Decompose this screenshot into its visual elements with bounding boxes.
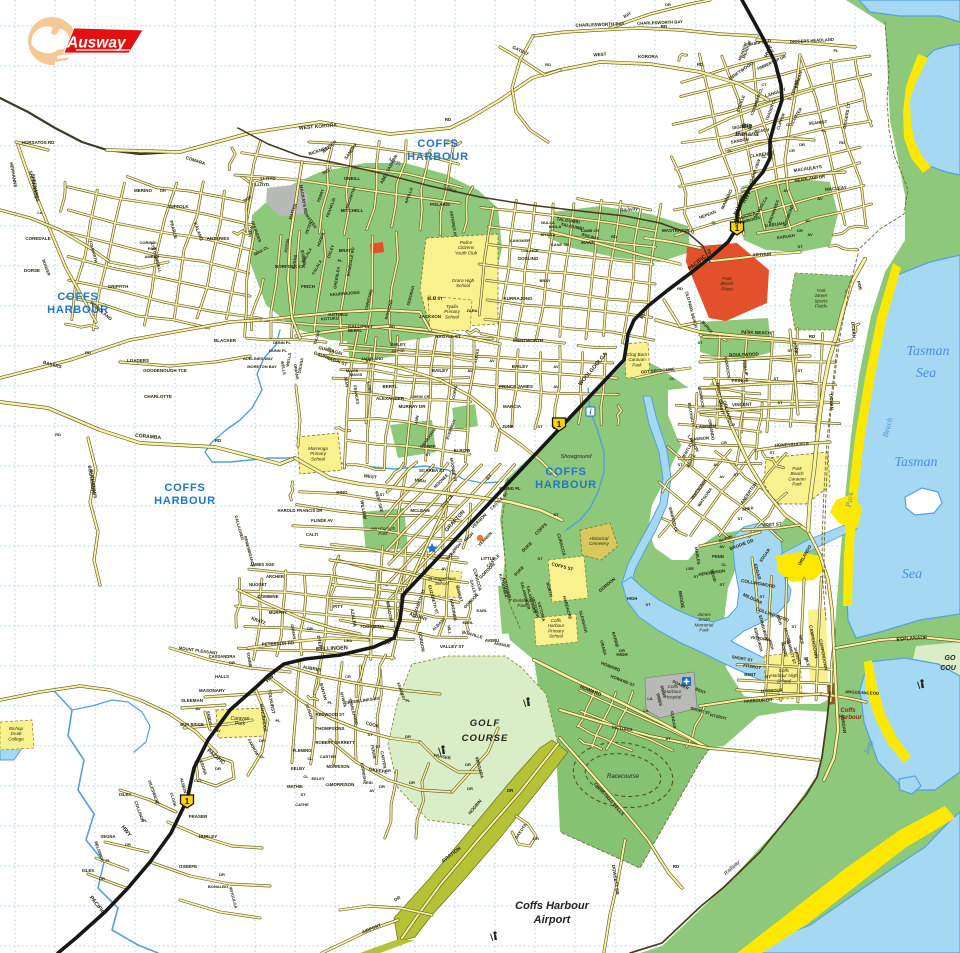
svg-text:ST: ST (733, 472, 739, 477)
svg-text:PL: PL (337, 258, 343, 263)
svg-text:CALTI: CALTI (306, 532, 318, 537)
svg-text:VOST ST: VOST ST (762, 521, 782, 527)
svg-text:ST: ST (783, 640, 789, 645)
svg-text:RD: RD (389, 324, 395, 329)
svg-text:Youth Club: Youth Club (455, 250, 478, 255)
svg-text:BRAY: BRAY (540, 278, 551, 283)
svg-text:DR: DR (507, 788, 514, 793)
svg-text:ST: ST (797, 244, 803, 249)
svg-text:DR: DR (465, 762, 471, 767)
svg-text:ST: ST (797, 368, 803, 373)
svg-text:School: School (445, 314, 460, 319)
svg-text:OXEEFE: OXEEFE (179, 864, 197, 869)
svg-text:WEST: WEST (593, 52, 606, 58)
svg-text:RD: RD (545, 62, 551, 67)
svg-text:Coffs Harbour: Coffs Harbour (515, 900, 589, 912)
svg-text:BAILEY: BAILEY (390, 342, 406, 347)
svg-text:MATHIE: MATHIE (287, 784, 303, 789)
svg-text:DR: DR (799, 142, 805, 147)
svg-text:PL: PL (275, 718, 281, 723)
svg-text:AV: AV (489, 358, 495, 363)
svg-text:GO: GO (945, 655, 956, 662)
svg-text:PRINCE: PRINCE (731, 378, 748, 384)
svg-text:PL: PL (821, 128, 827, 133)
svg-text:LA: LA (647, 696, 652, 701)
svg-text:Ausway: Ausway (66, 35, 127, 52)
svg-text:RD: RD (55, 432, 61, 437)
svg-text:AV: AV (783, 188, 789, 193)
svg-text:ARTHUR: ARTHUR (752, 251, 772, 257)
svg-text:DR: DR (619, 648, 625, 653)
svg-text:TOORMINA: TOORMINA (360, 624, 385, 629)
svg-text:CATHE: CATHE (295, 802, 309, 807)
svg-text:AV: AV (713, 462, 719, 467)
svg-text:PITT: PITT (333, 604, 343, 609)
svg-text:Tasman: Tasman (894, 455, 937, 470)
svg-text:Park: Park (235, 721, 246, 727)
svg-text:ST: ST (553, 512, 559, 517)
svg-text:Airport: Airport (533, 914, 572, 926)
svg-text:Tasman: Tasman (906, 344, 949, 359)
svg-text:EARL: EARL (477, 608, 488, 613)
svg-text:COLLICE: COLLICE (521, 248, 539, 253)
svg-text:Sea: Sea (916, 366, 936, 381)
svg-text:COFFS: COFFS (545, 466, 586, 478)
svg-text:MANN: MANN (581, 240, 595, 245)
svg-text:RD: RD (809, 334, 816, 339)
svg-text:COFFS: COFFS (417, 138, 458, 150)
svg-text:RD: RD (85, 350, 91, 355)
svg-text:CL: CL (307, 756, 313, 761)
svg-text:School: School (777, 678, 792, 683)
svg-text:BUR RIDGE: BUR RIDGE (180, 722, 204, 727)
svg-text:PENN: PENN (712, 554, 724, 559)
svg-text:DR: DR (533, 836, 539, 841)
svg-text:LA: LA (37, 210, 42, 215)
svg-text:HALLS: HALLS (215, 674, 229, 679)
svg-text:ST: ST (719, 582, 725, 587)
svg-text:SLEEMAN: SLEEMAN (181, 698, 203, 703)
svg-text:ISLES: ISLES (82, 868, 94, 873)
svg-text:COMBINE: COMBINE (257, 594, 278, 599)
svg-text:CL: CL (761, 154, 767, 159)
svg-text:DR: DR (409, 780, 415, 785)
svg-text:ST: ST (697, 340, 703, 345)
svg-text:CARTER: CARTER (320, 754, 337, 759)
svg-text:JACKSON: JACKSON (419, 314, 441, 319)
svg-text:PL: PL (392, 636, 398, 641)
svg-text:ZARA: ZARA (466, 308, 477, 313)
svg-text:DR: DR (379, 784, 385, 789)
svg-text:MAVIS: MAVIS (350, 372, 363, 377)
svg-text:ADELINES WAY: ADELINES WAY (243, 356, 273, 361)
svg-text:DR: DR (125, 842, 131, 847)
svg-text:LVIEW CR: LVIEW CR (410, 394, 429, 399)
svg-text:ST: ST (300, 792, 306, 797)
svg-text:School: School (311, 456, 326, 461)
svg-text:KANE CR: KANE CR (551, 242, 569, 247)
svg-text:DR: DR (215, 766, 221, 771)
svg-text:ST: ST (537, 424, 543, 429)
svg-text:Fields: Fields (815, 304, 828, 309)
svg-text:PL: PL (833, 48, 839, 53)
svg-text:AV: AV (553, 364, 559, 369)
svg-text:GOSLING: GOSLING (518, 256, 539, 261)
svg-text:CL: CL (787, 96, 793, 101)
svg-text:DR: DR (259, 738, 265, 743)
svg-text:ELBOW: ELBOW (454, 448, 472, 453)
svg-text:PL: PL (142, 818, 148, 823)
svg-text:HURLEY: HURLEY (199, 834, 218, 839)
svg-text:LANGKER: LANGKER (510, 238, 530, 243)
svg-text:DR: DR (99, 876, 105, 881)
svg-text:JUNE: JUNE (502, 424, 514, 429)
svg-text:AV: AV (215, 728, 221, 733)
svg-text:NUGGET: NUGGET (249, 582, 267, 587)
svg-text:CHARLOTTE: CHARLOTTE (144, 394, 172, 399)
svg-text:EELBY: EELBY (291, 766, 305, 771)
svg-text:CR: CR (345, 674, 351, 679)
svg-text:DR: DR (797, 228, 803, 233)
svg-text:MORRISON: MORRISON (330, 782, 355, 787)
svg-text:ST: ST (787, 348, 793, 353)
svg-text:POLARIS: POLARIS (430, 202, 450, 207)
svg-text:VINCENT: VINCENT (732, 402, 752, 408)
svg-text:Cemetery: Cemetery (589, 541, 610, 546)
svg-text:LEE: LEE (686, 566, 694, 571)
svg-text:FLINDE AV: FLINDE AV (311, 518, 333, 523)
svg-text:KING: KING (336, 490, 348, 495)
svg-text:Showground: Showground (561, 454, 593, 460)
svg-text:RIDING PL: RIDING PL (499, 486, 521, 491)
svg-text:COFFS: COFFS (164, 482, 205, 494)
svg-text:ST: ST (693, 574, 699, 579)
svg-text:ST: ST (537, 556, 543, 561)
svg-text:CL: CL (727, 148, 733, 153)
svg-text:Park: Park (792, 482, 802, 487)
svg-text:Sea: Sea (902, 567, 922, 582)
svg-text:REDWOOD ST: REDWOOD ST (316, 712, 345, 717)
svg-text:ST: ST (645, 602, 651, 607)
svg-text:ST: ST (777, 400, 783, 405)
svg-text:PL: PL (327, 700, 333, 705)
svg-text:LOADERS: LOADERS (127, 358, 149, 363)
svg-text:ST: ST (677, 462, 683, 467)
svg-text:MYUNA: MYUNA (541, 232, 556, 237)
svg-text:ST: ST (365, 358, 371, 363)
svg-text:BOULTWOOD: BOULTWOOD (729, 351, 760, 357)
svg-text:EARL: EARL (463, 620, 474, 625)
svg-text:ST: ST (759, 594, 765, 599)
svg-text:HARBOUR: HARBOUR (154, 495, 216, 507)
svg-text:NULLA: NULLA (541, 220, 555, 225)
svg-text:Plaza: Plaza (721, 286, 733, 291)
svg-text:CL: CL (303, 774, 309, 779)
svg-text:BERYL: BERYL (348, 328, 362, 333)
svg-text:CCT: CCT (786, 122, 795, 127)
svg-text:KORORA: KORORA (638, 54, 659, 59)
svg-text:MASTRACOLA: MASTRACOLA (662, 228, 695, 233)
svg-text:CL: CL (721, 562, 727, 567)
svg-text:RD: RD (445, 117, 452, 122)
svg-text:GRIFFITH: GRIFFITH (108, 284, 129, 289)
svg-text:AMBER: AMBER (145, 254, 160, 259)
svg-text:DR: DR (467, 786, 473, 791)
svg-text:PL: PL (155, 800, 161, 805)
svg-text:ROBERT GARRETT: ROBERT GARRETT (315, 740, 355, 745)
svg-text:BAILEY: BAILEY (512, 364, 529, 369)
svg-text:PL: PL (405, 698, 411, 703)
svg-text:School: School (549, 634, 564, 639)
svg-text:AV: AV (467, 368, 473, 373)
svg-text:CL: CL (259, 754, 265, 759)
svg-text:BERYL: BERYL (382, 384, 397, 389)
svg-text:ST: ST (791, 624, 797, 629)
svg-text:RD: RD (839, 140, 845, 145)
svg-text:WENTWORTH: WENTWORTH (513, 338, 543, 343)
svg-text:DUNN PL: DUNN PL (269, 348, 287, 353)
svg-text:AV: AV (805, 218, 811, 223)
svg-text:THOMPSONS: THOMPSONS (315, 726, 344, 731)
svg-text:AV: AV (719, 474, 725, 479)
svg-text:CR: CR (721, 440, 727, 445)
svg-text:ONEILL: ONEILL (344, 176, 361, 181)
svg-text:ST: ST (425, 452, 431, 457)
svg-text:ST: ST (737, 516, 743, 521)
svg-text:DR: DR (229, 660, 235, 665)
svg-text:HARBOUR: HARBOUR (535, 479, 597, 491)
svg-text:ST: ST (769, 450, 775, 455)
svg-text:ANTARIES: ANTARIES (207, 236, 230, 241)
svg-text:ST: ST (665, 736, 671, 741)
svg-text:CASSANDRA: CASSANDRA (209, 654, 236, 659)
svg-text:JACKLAND: JACKLAND (361, 356, 383, 361)
svg-text:BLACKER: BLACKER (214, 338, 237, 343)
svg-text:DORSE: DORSE (24, 268, 40, 273)
svg-text:ARGYLL ST: ARGYLL ST (435, 334, 461, 339)
svg-text:Racecourse: Racecourse (607, 774, 640, 780)
svg-text:MASONARY: MASONARY (199, 688, 225, 693)
svg-text:1: 1 (185, 797, 190, 806)
svg-text:Park: Park (378, 531, 388, 536)
svg-text:MURRAY DR: MURRAY DR (398, 404, 426, 409)
svg-text:School: School (435, 581, 450, 586)
svg-text:LLOYD: LLOYD (255, 182, 269, 187)
svg-text:ISLES: ISLES (119, 792, 131, 797)
svg-text:AV: AV (719, 544, 725, 549)
svg-text:JOYCE: JOYCE (391, 348, 405, 353)
svg-text:ST: ST (765, 674, 771, 679)
svg-text:AV: AV (553, 384, 559, 389)
svg-text:RD: RD (673, 864, 680, 869)
svg-text:MORRISON: MORRISON (326, 764, 349, 769)
svg-text:BENT: BENT (744, 672, 756, 677)
svg-text:RD: RD (677, 286, 683, 291)
svg-text:HIGH: HIGH (627, 596, 637, 601)
svg-text:CL: CL (669, 376, 675, 381)
svg-text:ALEXANDER: ALEXANDER (376, 396, 405, 401)
svg-text:CL: CL (325, 782, 331, 787)
svg-text:RD: RD (215, 438, 222, 443)
svg-text:CL: CL (711, 220, 717, 225)
svg-text:DUNN PL: DUNN PL (273, 340, 291, 345)
svg-text:COREDALE: COREDALE (25, 236, 50, 241)
svg-text:PRINCE JAMES: PRINCE JAMES (499, 384, 533, 389)
svg-text:ST: ST (773, 376, 779, 381)
svg-text:KOTUKU: KOTUKU (321, 316, 339, 322)
svg-text:AV: AV (195, 706, 201, 711)
svg-text:FLEMING: FLEMING (293, 748, 312, 753)
svg-text:MURPHY: MURPHY (269, 610, 287, 615)
svg-text:PL: PL (105, 858, 111, 863)
svg-text:COU: COU (940, 665, 957, 672)
svg-text:SUFFOLK: SUFFOLK (167, 204, 189, 209)
svg-text:EELEY: EELEY (311, 776, 324, 781)
svg-text:MORETON BAY: MORETON BAY (247, 364, 277, 369)
svg-text:LA: LA (643, 708, 648, 713)
svg-text:SCARBA ST: SCARBA ST (419, 468, 445, 473)
svg-text:College: College (8, 736, 24, 741)
svg-text:AV: AV (817, 196, 823, 201)
svg-text:ST: ST (367, 732, 373, 737)
svg-text:Park: Park (699, 628, 709, 633)
svg-text:LEA: LEA (344, 638, 352, 643)
svg-text:AV: AV (441, 566, 447, 571)
svg-text:DR: DR (307, 626, 313, 631)
svg-text:School: School (456, 283, 471, 288)
svg-text:RD: RD (697, 62, 705, 68)
svg-text:AV: AV (807, 232, 813, 237)
svg-text:LLOYD: LLOYD (260, 176, 276, 181)
svg-text:PARK BEACH: PARK BEACH (741, 329, 771, 335)
svg-text:RD: RD (611, 234, 617, 239)
svg-text:JAMES SGE: JAMES SGE (250, 562, 275, 567)
svg-text:CORINDI: CORINDI (140, 240, 157, 245)
svg-text:MARCIA: MARCIA (503, 404, 522, 409)
svg-text:GOLF: GOLF (470, 718, 500, 729)
svg-text:COURSE: COURSE (462, 733, 509, 744)
svg-text:CR: CR (729, 422, 735, 427)
svg-text:CT: CT (761, 82, 767, 87)
svg-text:ELM ST: ELM ST (427, 296, 443, 301)
svg-text:FINCH: FINCH (301, 284, 315, 289)
svg-text:DR: DR (160, 188, 166, 193)
svg-text:AV: AV (369, 788, 375, 793)
svg-text:GOODENOUGH TCE: GOODENOUGH TCE (143, 368, 187, 373)
svg-text:Coffs: Coffs (840, 708, 856, 714)
svg-text:ARCHER: ARCHER (266, 574, 284, 579)
svg-text:MITCHELL: MITCHELL (341, 208, 364, 213)
svg-text:DR: DR (219, 872, 225, 877)
svg-text:HARBOUR: HARBOUR (407, 151, 469, 163)
svg-text:KURRAJONG: KURRAJONG (503, 296, 533, 301)
svg-text:VALLEY ST: VALLEY ST (440, 644, 465, 649)
svg-text:HORSATOS RD: HORSATOS RD (22, 140, 56, 145)
svg-text:CL: CL (769, 48, 775, 53)
svg-text:CR: CR (789, 148, 795, 153)
svg-text:DR: DR (405, 734, 411, 739)
svg-text:SEGNA: SEGNA (101, 834, 116, 839)
svg-text:BAILEY: BAILEY (432, 368, 449, 373)
svg-text:Park: Park (632, 362, 642, 367)
svg-text:PAM: PAM (148, 246, 157, 251)
svg-text:MCLEAN: MCLEAN (410, 508, 429, 513)
svg-text:HAROLD FRANCIS DR: HAROLD FRANCIS DR (278, 508, 323, 513)
svg-text:BONALBO: BONALBO (208, 884, 228, 889)
svg-text:FRASER: FRASER (189, 814, 208, 819)
svg-text:DR: DR (665, 2, 671, 7)
svg-text:1: 1 (557, 420, 562, 429)
svg-text:REID: REID (363, 780, 373, 785)
svg-text:MERINO: MERINO (134, 188, 152, 193)
svg-text:CCT: CCT (194, 778, 203, 783)
